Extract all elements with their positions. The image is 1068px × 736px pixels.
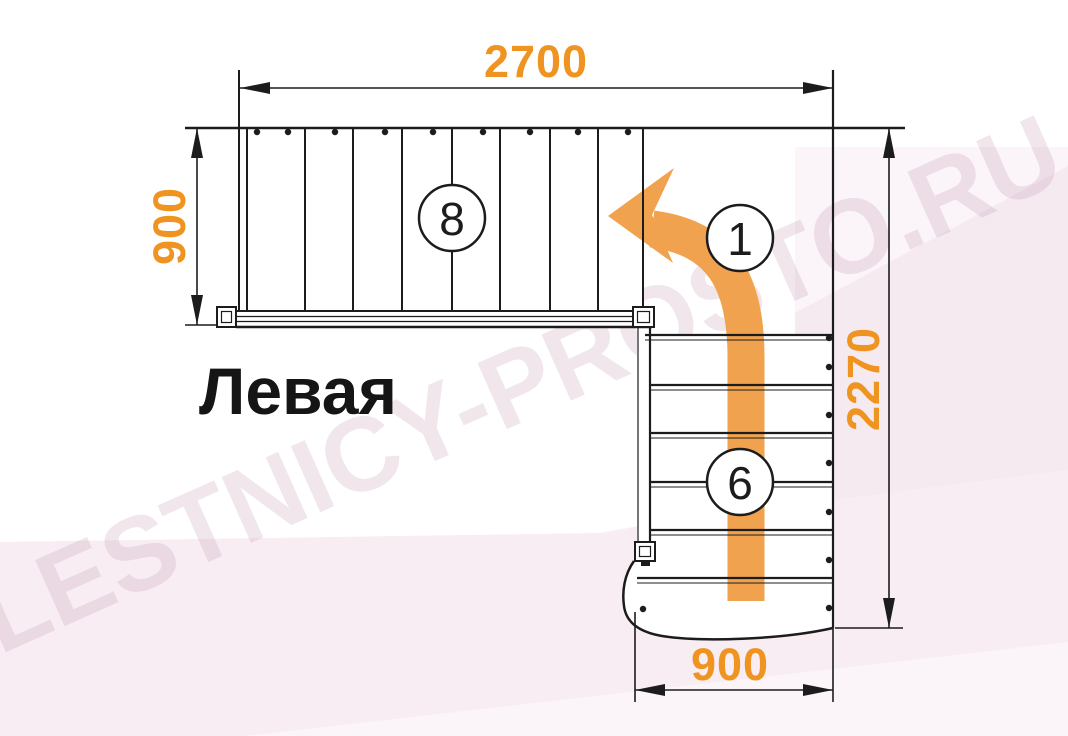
step-count-upper: 8	[439, 192, 465, 246]
dim-label-left: 900	[144, 187, 196, 265]
dim-label-right: 2270	[838, 327, 890, 431]
step-count-turn: 1	[727, 212, 753, 266]
dim-label-bottom: 900	[691, 639, 769, 691]
staircase-plan-diagram: LESTNICY-PROSTO.RU	[0, 0, 1068, 736]
dim-label-top: 2700	[484, 36, 588, 88]
page-title: Левая	[199, 353, 397, 429]
step-count-lower: 6	[727, 456, 753, 510]
newel-posts	[217, 307, 655, 566]
plan-linework	[0, 0, 1068, 736]
